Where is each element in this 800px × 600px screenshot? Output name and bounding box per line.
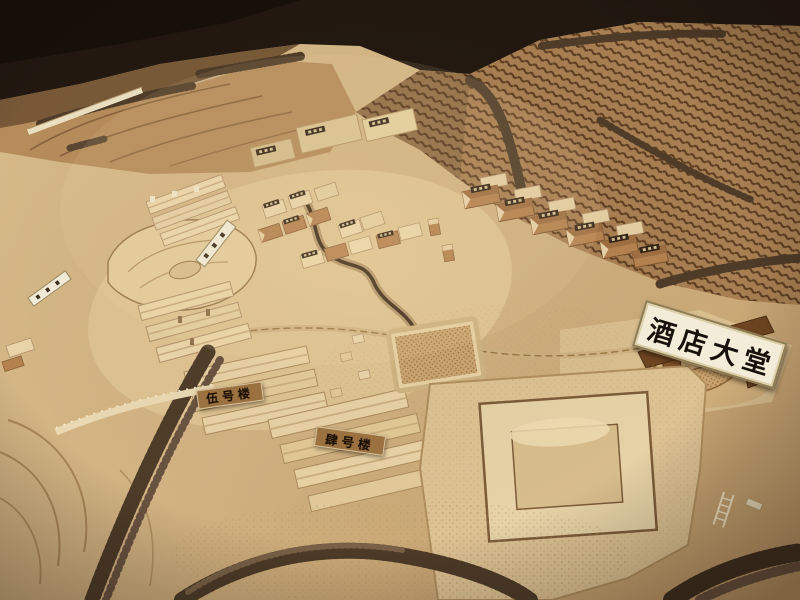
vignette [0,0,800,600]
model-scene [0,0,800,600]
model-photo: 酒店大堂 伍号楼 肆号楼 [0,0,800,600]
